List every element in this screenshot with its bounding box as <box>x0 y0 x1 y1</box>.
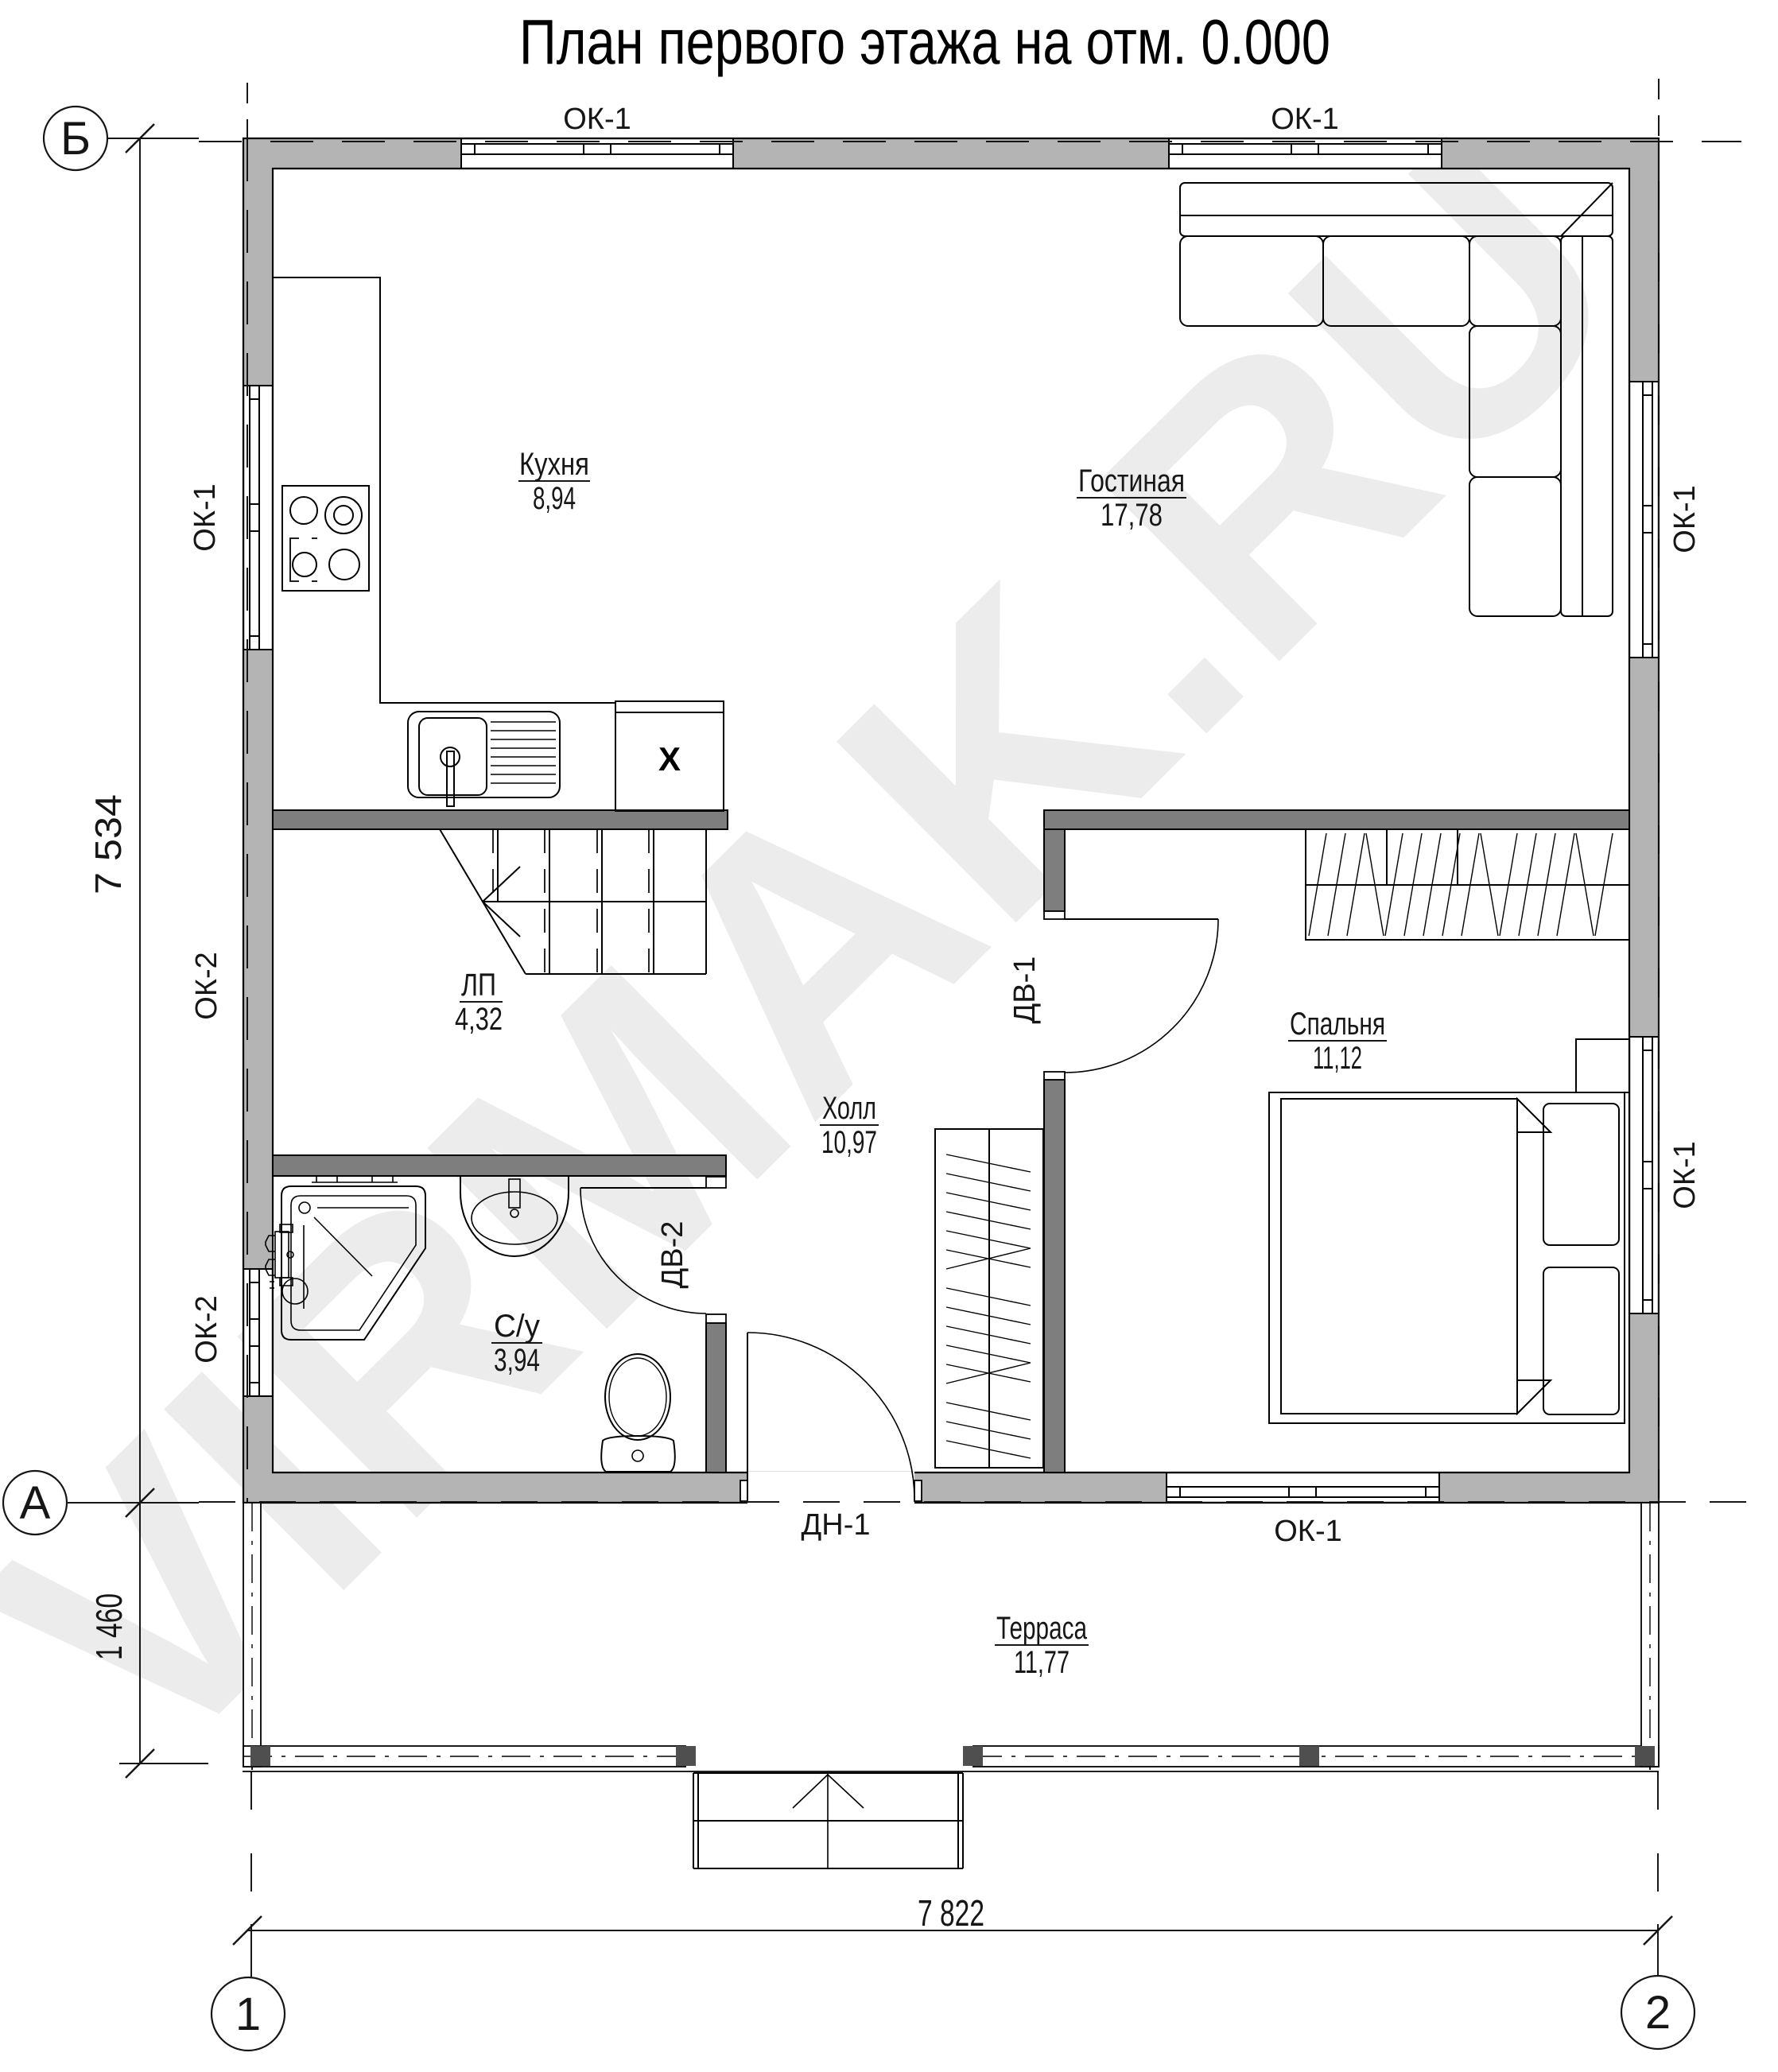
svg-text:1 460: 1 460 <box>88 1593 130 1660</box>
svg-text:4,32: 4,32 <box>455 1002 503 1037</box>
svg-text:ОК-1: ОК-1 <box>1271 103 1338 136</box>
svg-text:17,78: 17,78 <box>1101 498 1163 533</box>
svg-text:Гостиная: Гостиная <box>1078 464 1185 499</box>
svg-text:ДН-1: ДН-1 <box>802 1508 871 1542</box>
svg-text:3,94: 3,94 <box>494 1343 540 1378</box>
svg-text:7 822: 7 822 <box>918 1892 984 1934</box>
svg-text:ОК-2: ОК-2 <box>190 952 223 1019</box>
svg-text:7 534: 7 534 <box>87 794 129 894</box>
svg-text:ОК-1: ОК-1 <box>1668 485 1702 553</box>
svg-text:X: X <box>658 740 681 778</box>
svg-text:ЛП: ЛП <box>461 968 496 1003</box>
svg-text:2: 2 <box>1645 1987 1671 2039</box>
svg-text:ОК-1: ОК-1 <box>563 103 631 136</box>
svg-text:С/у: С/у <box>494 1309 540 1344</box>
svg-text:Б: Б <box>60 113 91 165</box>
svg-text:Кухня: Кухня <box>519 447 589 482</box>
svg-text:ДВ-2: ДВ-2 <box>656 1221 689 1289</box>
svg-text:ОК-1: ОК-1 <box>188 483 222 551</box>
svg-text:11,77: 11,77 <box>1014 1645 1070 1680</box>
svg-text:Холл: Холл <box>822 1091 876 1126</box>
svg-text:Спальня: Спальня <box>1290 1007 1385 1042</box>
svg-text:А: А <box>20 1477 51 1529</box>
svg-text:10,97: 10,97 <box>821 1125 877 1160</box>
svg-text:ДВ-1: ДВ-1 <box>1008 956 1042 1024</box>
svg-text:11,12: 11,12 <box>1313 1041 1362 1076</box>
svg-text:ОК-1: ОК-1 <box>1274 1515 1341 1548</box>
svg-text:1: 1 <box>235 1989 261 2040</box>
svg-text:План первого этажа на отм. 0.0: План первого этажа на отм. 0.000 <box>519 6 1330 77</box>
svg-text:ОК-2: ОК-2 <box>190 1295 223 1363</box>
svg-text:Терраса: Терраса <box>996 1611 1088 1646</box>
svg-text:ОК-1: ОК-1 <box>1668 1141 1702 1209</box>
svg-text:8,94: 8,94 <box>533 481 576 516</box>
